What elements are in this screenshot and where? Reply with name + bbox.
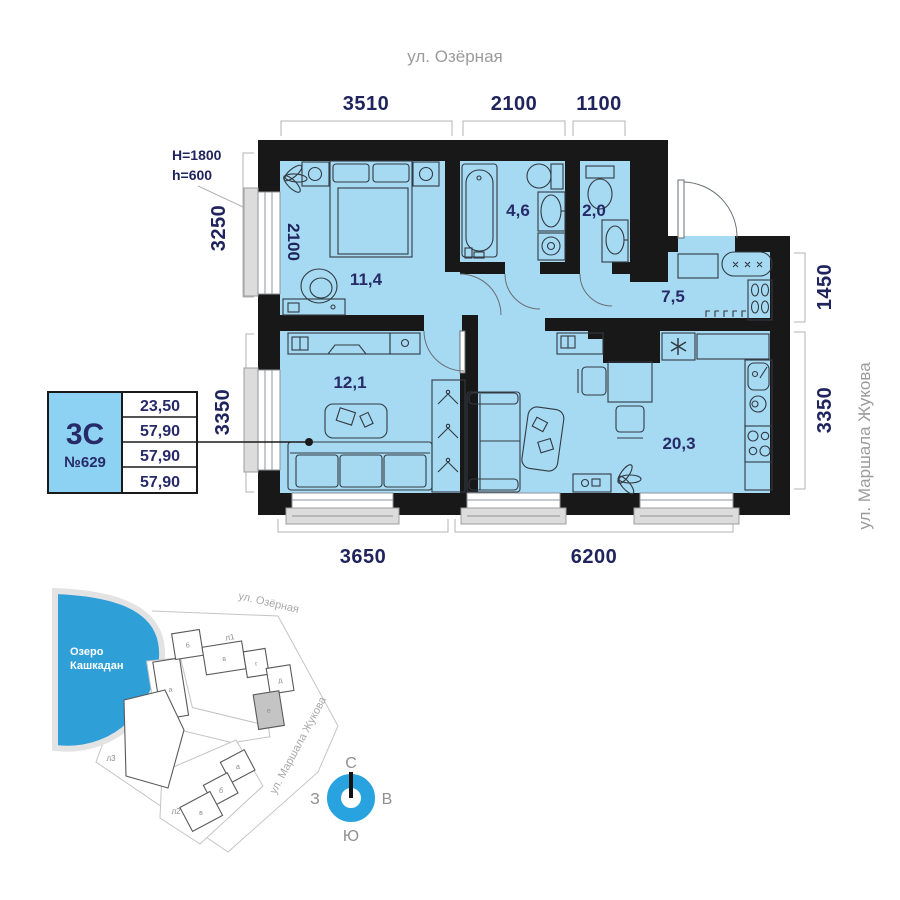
card-row-1: 23,50 [140,398,180,415]
building-label: л2 [171,807,181,816]
dim-right-bottom: 3350 [814,387,836,434]
room-label-hallway: 7,5 [661,287,685,306]
dim-bracket [463,121,565,136]
room-label-bedroom: 11,4 [350,270,383,289]
dim-top-3: 1100 [576,93,621,115]
entry-door-arc [684,182,737,238]
room-label-bathroom: 4,6 [506,201,530,220]
window [258,192,280,294]
dim-bracket [794,253,805,322]
dim-bedroom-width: 2100 [284,223,303,261]
window-note-line2: h=600 [172,167,212,183]
room-label-living: 20,3 [662,434,695,453]
site-plan: Озеро Кашкадан ул. Озёрная ул. Маршала Ж… [55,590,338,852]
section-letter: а [236,764,240,771]
lake-label-line2: Кашкадан [70,660,124,672]
dim-top-1: 3510 [343,93,390,115]
dimensions-bottom: 3650 6200 [278,519,733,568]
dim-bracket [281,121,452,136]
window [258,370,280,470]
section-letter: б [219,787,223,795]
dim-left-bottom: 3350 [212,389,234,436]
building-label: л3 [106,754,116,763]
section-letter: в [199,810,203,817]
card-row-3: 57,90 [140,448,180,465]
street-label-top: ул. Озёрная [407,47,502,66]
room-label-wc: 2,0 [582,201,606,220]
street-label-right: ул. Маршала Жукова [855,362,874,530]
window-bottom-1 [286,493,399,524]
room-label-room2: 12,1 [333,373,366,392]
compass-south: Ю [343,828,359,845]
card-type-label: 3С [66,418,104,451]
compass-east: В [382,791,393,808]
dimensions-right: 1450 3350 ул. Маршала Жукова [794,253,874,530]
dim-top-2: 2100 [491,93,538,115]
dim-bracket [573,121,625,136]
site-street-top: ул. Озёрная [237,590,300,616]
compass: С В Ю З [310,755,392,845]
card-row-2: 57,90 [140,423,180,440]
window-bottom-3 [634,493,739,524]
dimensions-top: 3510 2100 1100 [281,93,625,136]
window-bottom-2 [461,493,566,524]
dim-bracket [794,332,805,489]
window-note-line1: H=1800 [172,147,222,163]
compass-north: С [345,755,357,772]
dim-left-top: 3250 [208,205,230,252]
card-leader-dot [305,438,313,446]
entry-door-leaf [678,180,684,238]
window-sill [244,188,258,296]
card-number-label: №629 [64,454,106,471]
compass-west: З [310,791,320,808]
dim-bottom-1: 3650 [340,546,387,568]
card-row-4: 57,90 [140,474,180,491]
floorplan-screenshot: ул. Озёрная 3510 2100 1100 H=1800 h=600 … [0,0,900,900]
dim-right-top: 1450 [814,264,836,311]
room2-door-leaf [460,331,465,373]
lake-label-line1: Озеро [70,646,104,658]
dim-bottom-2: 6200 [571,546,618,568]
window-sill [244,368,258,472]
